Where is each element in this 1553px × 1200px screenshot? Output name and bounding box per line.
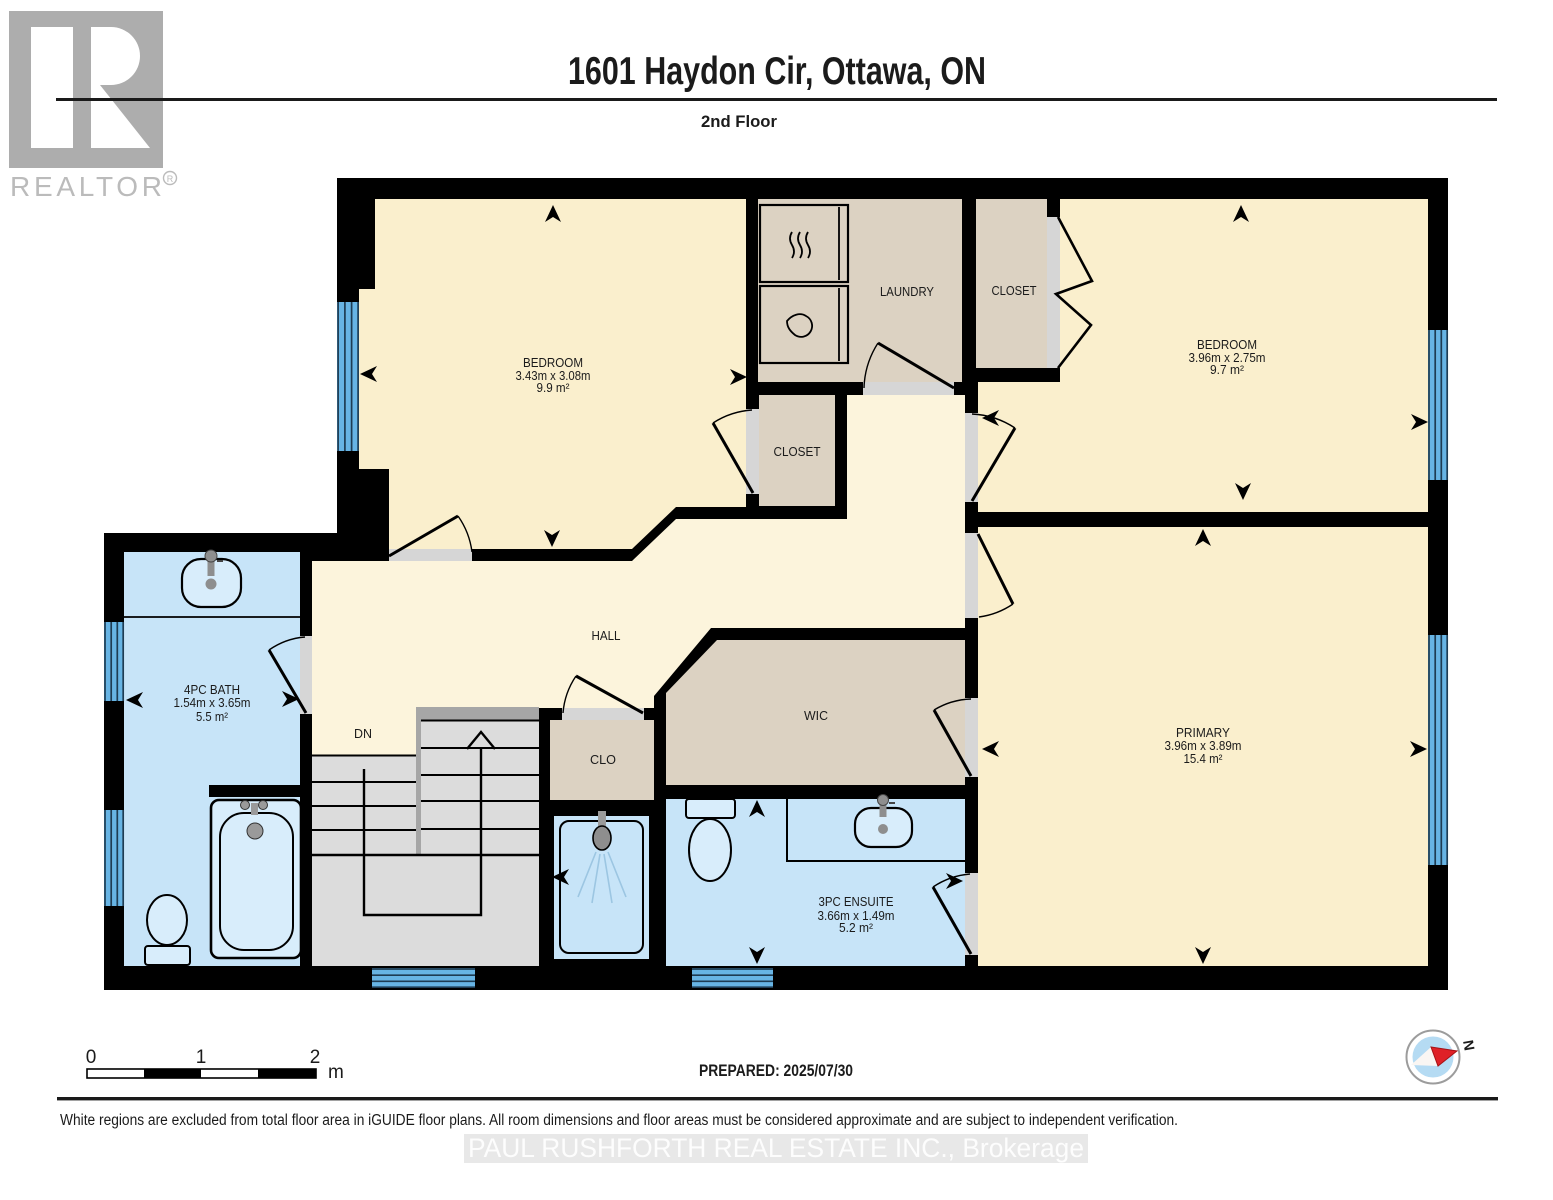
- svg-text:PRIMARY: PRIMARY: [1176, 726, 1231, 740]
- svg-text:PAUL RUSHFORTH REAL ESTATE INC: PAUL RUSHFORTH REAL ESTATE INC., Brokera…: [468, 1133, 1084, 1163]
- svg-text:HALL: HALL: [592, 629, 621, 643]
- svg-text:5.5 m²: 5.5 m²: [196, 710, 228, 724]
- svg-text:2: 2: [310, 1047, 321, 1068]
- svg-text:DN: DN: [354, 727, 372, 741]
- svg-text:1601 Haydon Cir, Ottawa, ON: 1601 Haydon Cir, Ottawa, ON: [568, 50, 986, 93]
- svg-text:1: 1: [196, 1047, 207, 1068]
- svg-text:BEDROOM: BEDROOM: [1197, 338, 1257, 352]
- svg-text:2nd Floor: 2nd Floor: [701, 112, 777, 131]
- svg-text:CLO: CLO: [590, 753, 616, 767]
- svg-text:LAUNDRY: LAUNDRY: [880, 285, 935, 299]
- svg-text:BEDROOM: BEDROOM: [523, 356, 583, 370]
- svg-text:4PC BATH: 4PC BATH: [184, 683, 240, 697]
- svg-text:5.2 m²: 5.2 m²: [839, 921, 873, 935]
- svg-text:m: m: [328, 1062, 344, 1083]
- svg-text:3PC ENSUITE: 3PC ENSUITE: [819, 895, 894, 909]
- svg-text:1.54m x 3.65m: 1.54m x 3.65m: [174, 696, 251, 710]
- svg-text:PREPARED: 2025/07/30: PREPARED: 2025/07/30: [699, 1061, 853, 1080]
- svg-text:R: R: [167, 174, 174, 184]
- svg-text:CLOSET: CLOSET: [774, 445, 821, 459]
- svg-text:15.4 m²: 15.4 m²: [1184, 752, 1223, 766]
- svg-text:WIC: WIC: [804, 709, 828, 723]
- svg-text:9.9 m²: 9.9 m²: [537, 381, 570, 395]
- svg-text:White regions are excluded fro: White regions are excluded from total fl…: [60, 1112, 1178, 1129]
- svg-text:9.7 m²: 9.7 m²: [1210, 363, 1244, 377]
- svg-text:3.96m x 3.89m: 3.96m x 3.89m: [1165, 739, 1242, 753]
- svg-text:0: 0: [86, 1047, 97, 1068]
- svg-text:CLOSET: CLOSET: [992, 284, 1037, 298]
